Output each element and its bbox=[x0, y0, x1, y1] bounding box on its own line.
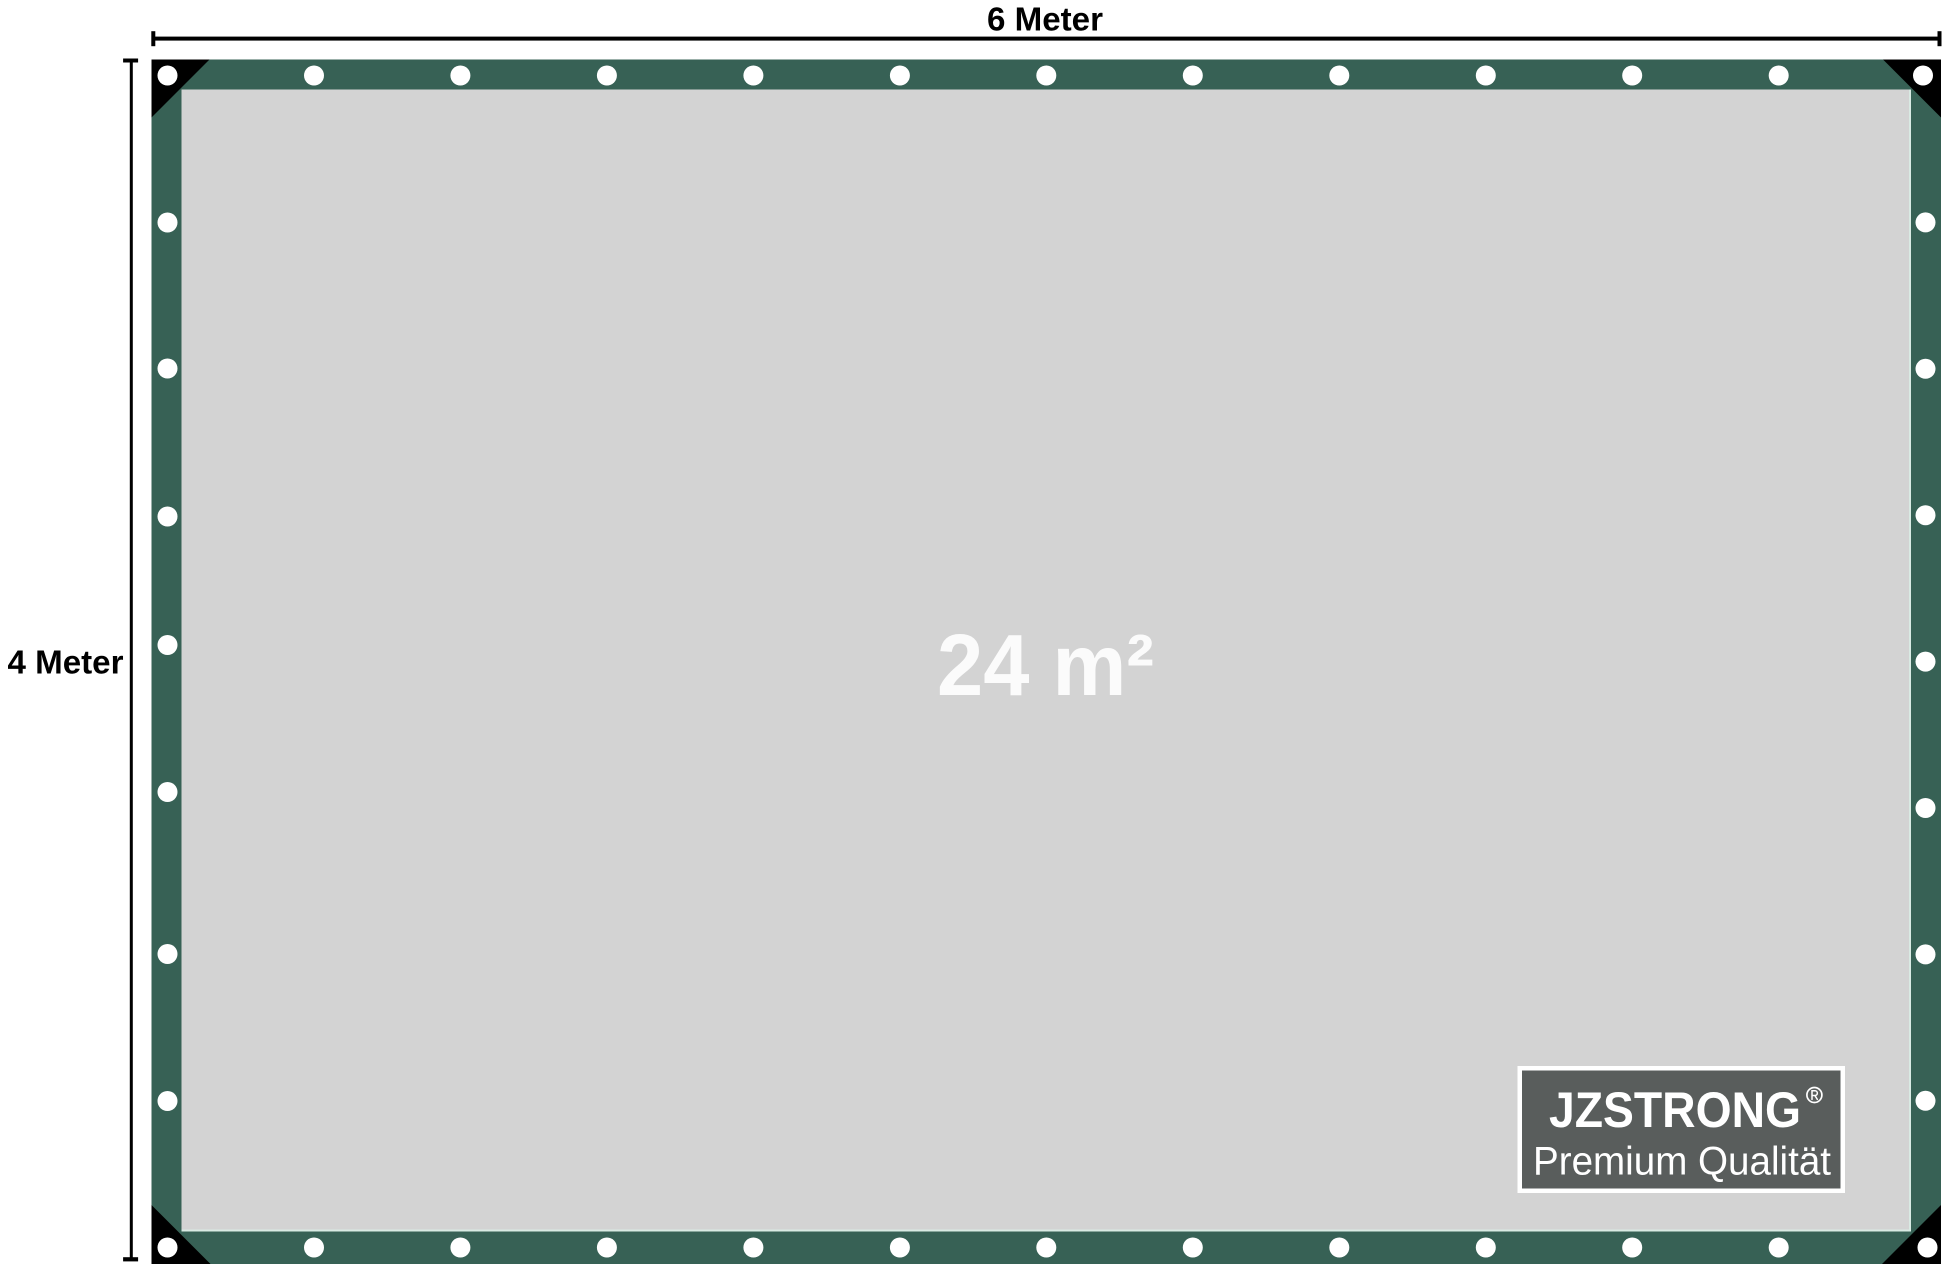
svg-text:6 Meter: 6 Meter bbox=[987, 1, 1103, 38]
svg-text:4 Meter: 4 Meter bbox=[8, 644, 124, 681]
svg-text:24 m²: 24 m² bbox=[937, 617, 1154, 714]
svg-text:JZSTRONG: JZSTRONG bbox=[1549, 1081, 1801, 1138]
svg-text:Premium Qualität: Premium Qualität bbox=[1533, 1140, 1831, 1184]
